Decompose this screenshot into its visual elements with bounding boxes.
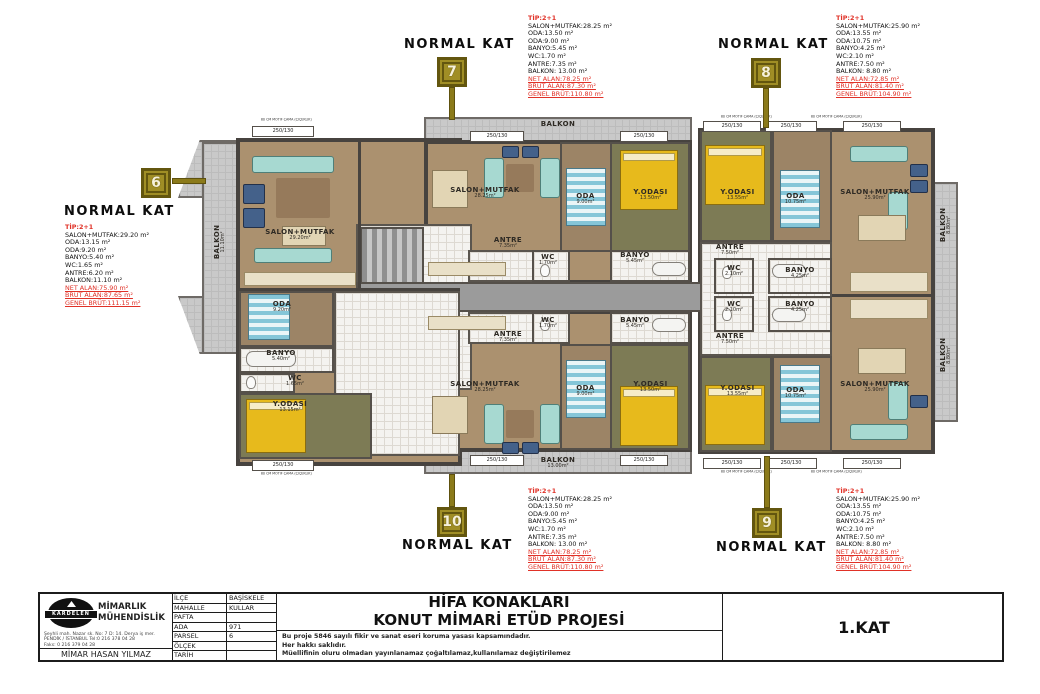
kitchen-counter-unit9 (850, 299, 928, 319)
dim-caption: 80 CM MOTİF ÇAMA (ÇİÇEKLİK) (811, 115, 862, 119)
project-title: HİFA KONAKLARI KONUT MİMARİ ETÜD PROJESİ (276, 594, 722, 631)
room-label-wc-unit8: WC2.10m² (714, 264, 754, 278)
dining-table (858, 215, 906, 241)
sofa (254, 248, 332, 263)
room-label-oda-unit10: ODA9.00m² (558, 384, 613, 398)
rug (276, 178, 330, 218)
sofa (484, 404, 504, 444)
copyright-line: Bu proje 5846 sayılı fikir ve sanat eser… (282, 633, 722, 642)
dim-box: 250/130 (765, 121, 817, 132)
unit-10-spec-red-lines: NET ALAN:78.25 m²BRÜT ALAN:87.30 m²GENEL… (528, 549, 638, 572)
title-block-fields: İLÇE BAŞİSKELE MAHALLE KULLAR PAFTA ADA … (172, 594, 277, 660)
armchair (243, 208, 265, 228)
dim-box: 250/130 (252, 126, 314, 137)
room-label-banyo-unit7: BANYO5.45m² (600, 251, 670, 265)
spec-line-red: GENEL BRÜT:104.90 m² (836, 564, 946, 572)
room-label-wc-unit10: WC1.70m² (528, 316, 568, 330)
unit-6-spec-lines: SALON+MUTFAK:29.20 m²ODA:13.15 m²ODA:9.2… (65, 232, 175, 285)
field-label: PAFTA (172, 613, 227, 622)
dim-caption: 80 CM MOTİF ÇAMA (ÇİÇEKLİK) (811, 470, 862, 474)
floor-label: 1.KAT (722, 594, 1006, 660)
room-label-antre-unit10: ANTRE7.35m² (478, 330, 538, 344)
room-label-oda-unit6: ODA9.20m² (252, 300, 312, 314)
unit-8-sign-stem (763, 88, 769, 128)
room-label-balkon-unit7: BALKON (518, 120, 598, 128)
room-label-wc-unit9: WC2.10m² (714, 300, 754, 314)
room-label-oda-unit8: ODA10.75m² (768, 192, 823, 206)
copyright-notice: Bu proje 5846 sayılı fikir ve sanat eser… (276, 631, 722, 659)
unit-6-sign-stem (172, 178, 206, 184)
unit-10-spec-lines: SALON+MUTFAK:28.25 m²ODA:13.50 m²ODA:9.0… (528, 496, 638, 549)
kitchen-counter-unit8 (850, 272, 928, 292)
unit-9-sign: 9 (752, 508, 782, 538)
unit-8-kat-label: NORMAL KAT (718, 37, 829, 52)
kardelen-logo-text: KARDELEN (45, 610, 97, 619)
unit-7-kat-label: NORMAL KAT (404, 37, 515, 52)
kitchen-counter-unit10 (428, 316, 506, 330)
unit-9-spec: TİP:2+1 SALON+MUTFAK:25.90 m²ODA:13.55 m… (836, 488, 946, 572)
field-value: 6 (227, 632, 276, 641)
unit-6-sign: 6 (141, 168, 171, 198)
room-label-yodasi-unit9: Y.ODASI13.55m² (700, 384, 775, 398)
unit6-partition (358, 142, 361, 290)
armchair (910, 164, 928, 177)
spec-line-red: GENEL BRÜT:111.15 m² (65, 300, 175, 308)
unit8-9-partition (832, 294, 934, 297)
armchair (910, 395, 928, 408)
dim-box: 250/130 (765, 458, 817, 469)
toilet (246, 376, 256, 389)
field-label: TARİH (172, 651, 227, 660)
unit-10-sign-stem (449, 474, 455, 507)
company-name: MİMARLIK MÜHENDİSLİK (98, 602, 165, 624)
sofa (540, 158, 560, 198)
room-label-salon-unit10: SALON+MUTFAK28.25m² (430, 380, 540, 394)
room-label-oda-unit9: ODA10.75m² (768, 386, 823, 400)
project-title-line2: KONUT MİMARİ ETÜD PROJESİ (276, 612, 722, 630)
copyright-line: Müellifinin oluru olmadan yayınlanamaz ç… (282, 650, 722, 659)
armchair (502, 442, 519, 454)
field-value (227, 651, 276, 660)
room-label-balkon-unit10: BALKON13.00m² (518, 456, 598, 470)
room-label-banyo-unit8: BANYO4.25m² (770, 266, 830, 280)
room-label-antre-unit9: ANTRE7.50m² (700, 332, 760, 346)
dim-box: 250/130 (703, 121, 761, 132)
field-value: KULLAR (227, 604, 276, 613)
spec-line-red: GENEL BRÜT:110.80 m² (528, 564, 638, 572)
room-label-antre-unit8: ANTRE7.50m² (700, 243, 760, 257)
unit-7-sign: 7 (437, 57, 467, 87)
dim-box: 250/130 (843, 458, 901, 469)
field-row: MAHALLE KULLAR (172, 604, 276, 614)
unit-10-spec: TİP:2+1 SALON+MUTFAK:28.25 m²ODA:13.50 m… (528, 488, 638, 572)
dim-box: 250/130 (703, 458, 761, 469)
field-label: MAHALLE (172, 604, 227, 613)
unit-10-kat-label: NORMAL KAT (402, 538, 513, 553)
title-block-center: HİFA KONAKLARI KONUT MİMARİ ETÜD PROJESİ… (276, 594, 723, 660)
stairs (360, 227, 424, 284)
dining-table (432, 396, 468, 434)
room-label-salon-unit7: SALON+MUTFAK28.25m² (430, 186, 540, 200)
armchair (522, 146, 539, 158)
dining-table (858, 348, 906, 374)
room-label-yodasi-unit10: Y.ODASI13.50m² (613, 380, 688, 394)
unit-9-sign-stem (764, 456, 770, 508)
company-address: Şeyhli mah. Nazar sk. No: 7 D: 14. Derya… (44, 632, 155, 648)
kitchen-counter-unit6 (244, 272, 356, 286)
dim-box: 250/130 (620, 455, 668, 466)
room-label-wc-unit6: WC1.65m² (270, 374, 320, 388)
unit-7-spec: TİP:2+1 SALON+MUTFAK:28.25 m²ODA:13.50 m… (528, 15, 638, 99)
field-row: PAFTA (172, 613, 276, 623)
unit-8-spec-lines: SALON+MUTFAK:25.90 m²ODA:13.55 m²ODA:10.… (836, 23, 946, 76)
field-row: TARİH (172, 651, 276, 660)
unit-9-spec-lines: SALON+MUTFAK:25.90 m²ODA:13.55 m²ODA:10.… (836, 496, 946, 549)
unit-7-sign-stem (449, 87, 455, 120)
dim-box: 250/130 (843, 121, 901, 132)
field-label: PARSEL (172, 632, 227, 641)
spec-line-red: GENEL BRÜT:110.80 m² (528, 91, 638, 99)
field-label: ÖLÇEK (172, 642, 227, 651)
field-row: İLÇE BAŞİSKELE (172, 594, 276, 604)
field-value: BAŞİSKELE (227, 594, 276, 603)
unit-7-spec-lines: SALON+MUTFAK:28.25 m²ODA:13.50 m²ODA:9.0… (528, 23, 638, 76)
architect-name: MİMAR HASAN YILMAZ (40, 648, 172, 659)
room-label-antre-unit7: ANTRE7.35m² (478, 236, 538, 250)
title-block-company: KARDELEN MİMARLIK MÜHENDİSLİK Şeyhli mah… (40, 594, 173, 660)
unit-10-sign: 10 (437, 507, 467, 537)
kardelen-logo: KARDELEN (48, 598, 94, 628)
room-label-banyo-unit6: BANYO5.40m² (246, 349, 316, 363)
room-label-salon-unit8: SALON+MUTFAK25.90m² (820, 188, 930, 202)
sofa (252, 156, 334, 173)
room-label-banyo-unit10: BANYO5.45m² (600, 316, 670, 330)
room-label-yodasi-unit8: Y.ODASI13.55m² (700, 188, 775, 202)
field-label: İLÇE (172, 594, 227, 603)
unit-8-spec: TİP:2+1 SALON+MUTFAK:25.90 m²ODA:13.55 m… (836, 15, 946, 99)
title-block: KARDELEN MİMARLIK MÜHENDİSLİK Şeyhli mah… (38, 592, 1004, 662)
room-label-yodasi-unit6: Y.ODASI13.15m² (250, 400, 330, 414)
rug (506, 410, 534, 438)
room-label-salon-unit6: SALON+MUTFAK29.20m² (245, 228, 355, 242)
room-label-banyo-unit9: BANYO4.25m² (770, 300, 830, 314)
dim-caption: 80 CM MOTİF ÇAMA (ÇİÇEKLİK) (261, 472, 312, 476)
copyright-line: Her hakkı saklıdır. (282, 642, 722, 651)
room-label-wc-unit7: WC1.70m² (528, 253, 568, 267)
field-value (227, 642, 276, 651)
room-label-oda-unit7: ODA9.00m² (558, 192, 613, 206)
armchair (243, 184, 265, 204)
room-label-salon-unit9: SALON+MUTFAK25.90m² (820, 380, 930, 394)
unit-6-spec: TİP:2+1 SALON+MUTFAK:29.20 m²ODA:13.15 m… (65, 224, 175, 308)
dim-box: 250/130 (252, 460, 314, 471)
kitchen-counter-unit7 (428, 262, 506, 276)
armchair (502, 146, 519, 158)
dim-box: 250/130 (470, 455, 524, 466)
sofa (850, 146, 908, 162)
project-title-line1: HİFA KONAKLARI (276, 594, 722, 612)
drawing-sheet: 80 CM MOTİF ÇAMA (ÇİÇEKLİK) 250/130 250/… (0, 0, 1040, 694)
unit-7-spec-red-lines: NET ALAN:78.25 m²BRÜT ALAN:87.30 m²GENEL… (528, 76, 638, 99)
room-label-balkon-unit9: BALKON8.80m² (939, 325, 953, 385)
bed-double-yellow (620, 386, 678, 446)
armchair (522, 442, 539, 454)
room-label-balkon-unit6: BALKON11.10m² (213, 212, 227, 272)
spec-line-red: GENEL BRÜT:104.90 m² (836, 91, 946, 99)
sofa (540, 404, 560, 444)
field-value: 971 (227, 623, 276, 632)
dim-caption: 80 CM MOTİF ÇAMA (ÇİÇEKLİK) (261, 118, 312, 122)
unit-6-kat-label: NORMAL KAT (64, 204, 175, 219)
dim-box: 250/130 (470, 131, 524, 142)
sofa (850, 424, 908, 440)
field-row: PARSEL 6 (172, 632, 276, 642)
field-label: ADA (172, 623, 227, 632)
dim-box: 250/130 (620, 131, 668, 142)
unit-9-kat-label: NORMAL KAT (716, 540, 827, 555)
unit-6-spec-red-lines: NET ALAN:75.90 m²BRÜT ALAN:87.65 m²GENEL… (65, 285, 175, 308)
field-value (227, 613, 276, 622)
unit-9-spec-red-lines: NET ALAN:72.85 m²BRÜT ALAN:81.40 m²GENEL… (836, 549, 946, 572)
room-label-balkon-unit8: BALKON8.80m² (939, 195, 953, 255)
room-label-yodasi-unit7: Y.ODASI13.50m² (613, 188, 688, 202)
unit-8-sign: 8 (751, 58, 781, 88)
field-row: ADA 971 (172, 623, 276, 633)
unit-8-spec-red-lines: NET ALAN:72.85 m²BRÜT ALAN:81.40 m²GENEL… (836, 76, 946, 99)
